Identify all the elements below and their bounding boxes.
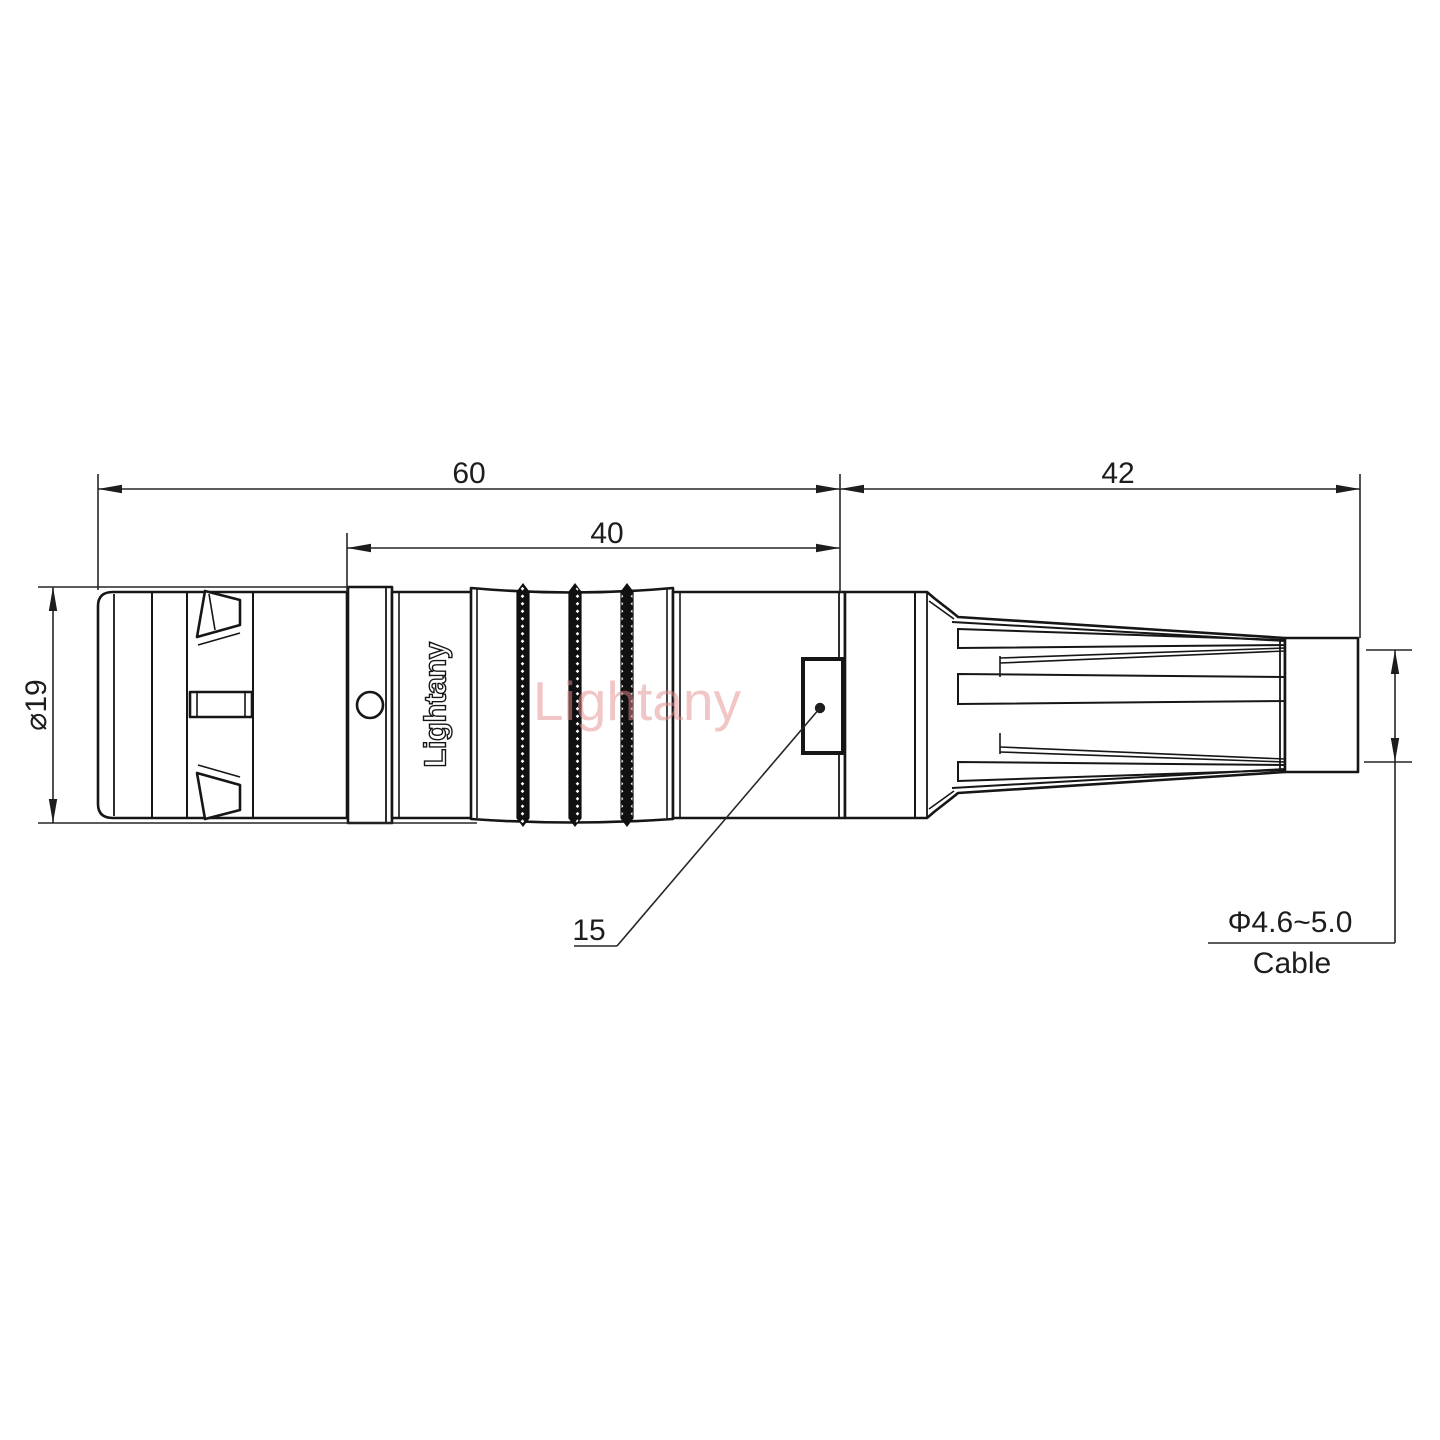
watermark: Lightany	[533, 670, 741, 732]
latch-window	[190, 692, 252, 717]
drawing-canvas: Lightany Lightany 60 40 42 ⌀19	[0, 0, 1440, 1440]
dim-40-label: 40	[590, 517, 623, 550]
dim-60-label: 60	[452, 457, 485, 490]
brand-engraving-text: Lightany	[418, 641, 453, 767]
cable-word-label: Cable	[1253, 947, 1331, 980]
dimension-60: 60	[98, 457, 840, 592]
strain-relief-boot	[845, 592, 1358, 818]
dim-42-label: 42	[1101, 457, 1134, 490]
cable-range-label: Φ4.6~5.0	[1228, 906, 1353, 939]
brand-engraving: Lightany	[418, 641, 453, 767]
pin-hole	[357, 692, 383, 718]
cable-exit-cylinder	[1285, 638, 1358, 772]
watermark-text: Lightany	[533, 670, 741, 732]
dim-15-label: 15	[572, 914, 605, 947]
connector-drawing-svg: Lightany Lightany 60 40 42 ⌀19	[0, 0, 1440, 1440]
boot-silhouette	[845, 592, 1285, 818]
dim-19-label: ⌀19	[20, 679, 53, 730]
dimension-40: 40	[347, 517, 840, 592]
